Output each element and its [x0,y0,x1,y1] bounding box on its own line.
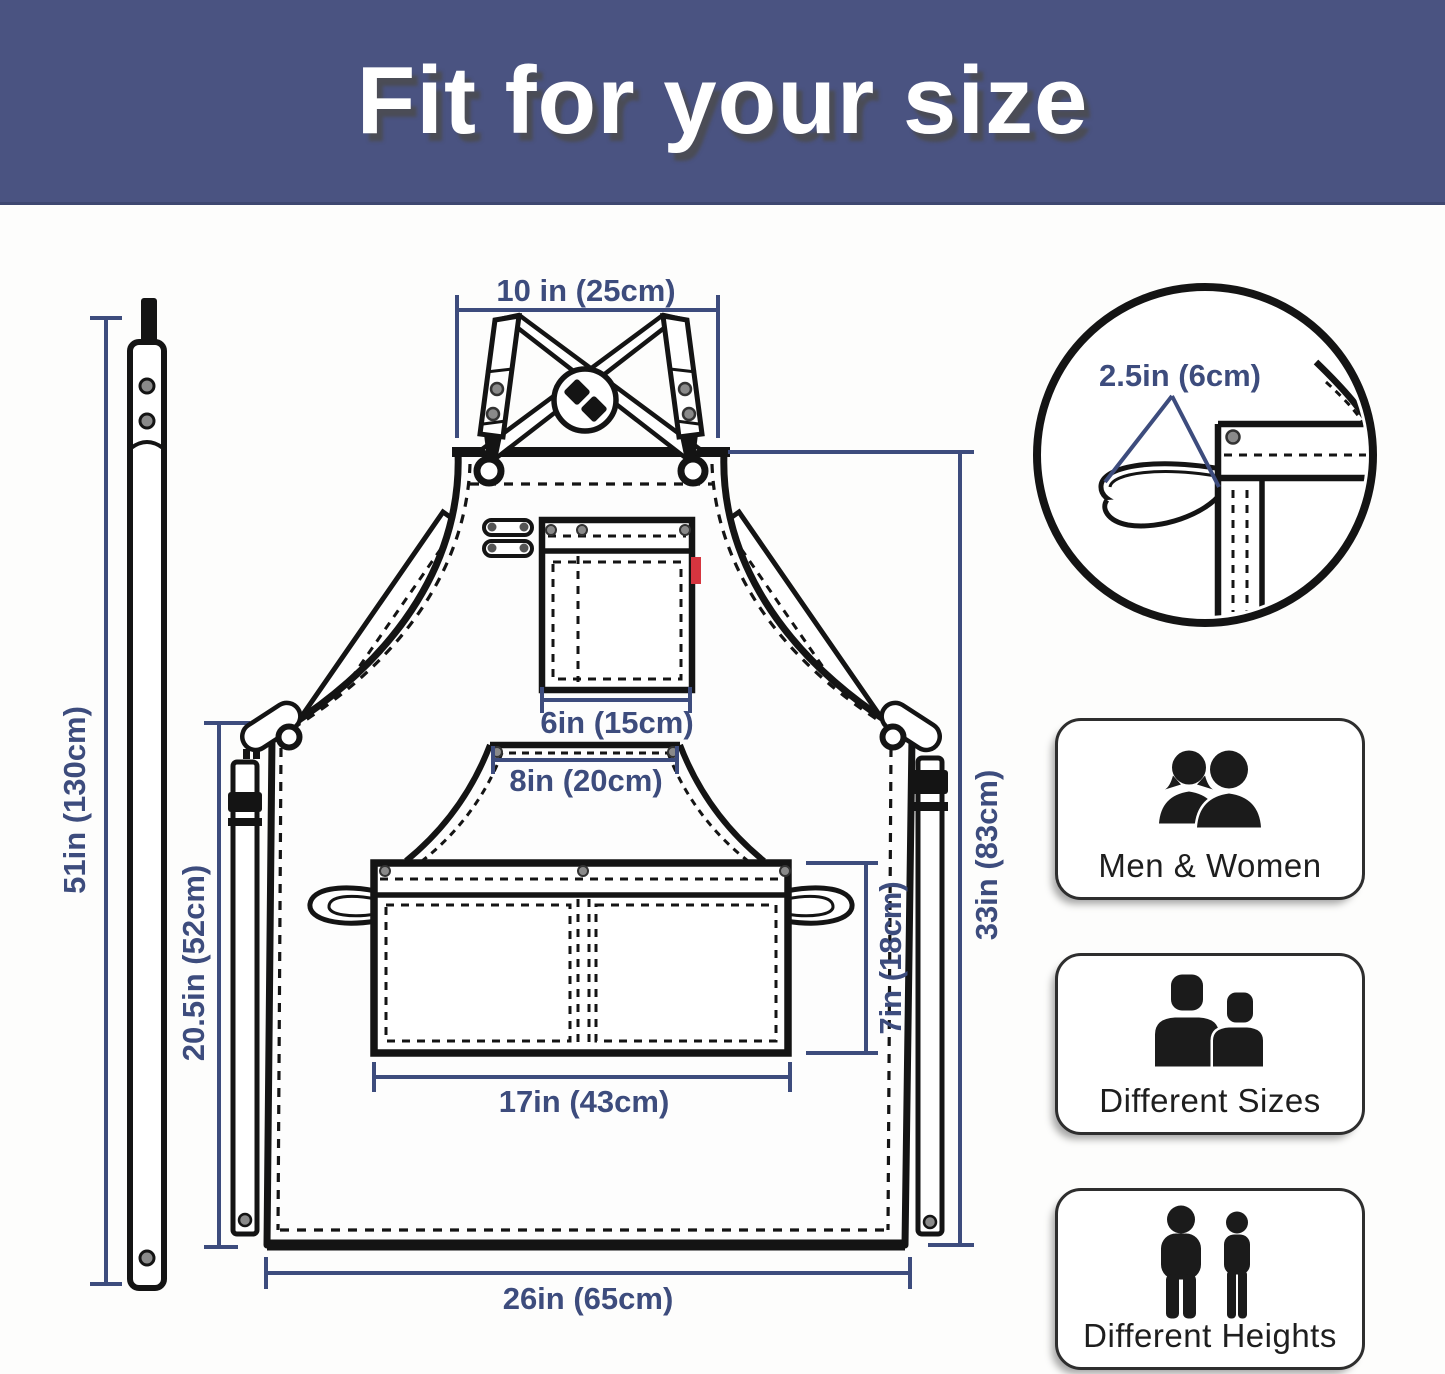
feature-card-different-heights: Different Heights [1055,1188,1365,1370]
dim-neck-width-label: 10 in (25cm) [496,273,675,308]
dim-body-length-label: 33in (83cm) [969,770,1004,941]
strap-buckle [228,792,262,812]
feature-label: Different Heights [1058,1317,1362,1355]
dim-bottom-width: 26in (65cm) [266,1257,910,1316]
long-strap-drawing [130,298,164,1288]
apron-diagram: 51in (130cm) 20.5in (52cm) [0,0,1445,1374]
towel-loop-left [310,888,376,923]
detail-circle: 2.5in (6cm) [1037,287,1383,623]
dim-loop-width-label: 2.5in (6cm) [1099,358,1261,393]
dim-bottom-width-label: 26in (65cm) [503,1281,674,1316]
dim-chest-pocket-label: 6in (15cm) [540,705,693,740]
men-women-icon [1145,731,1275,849]
grommet-icon [883,727,904,748]
dim-panel-top-label: 8in (20cm) [509,763,662,798]
grommet-icon [477,459,501,483]
dim-strap-length-label: 51in (130cm) [57,706,92,894]
strap-buckle [912,770,948,794]
waist-pocket [310,863,852,1053]
feature-card-different-sizes: Different Sizes [1055,953,1365,1135]
different-sizes-icon [1145,966,1275,1084]
towel-loop-right [786,888,852,923]
dim-side-length-label: 20.5in (52cm) [176,865,211,1061]
grommet-icon [681,459,705,483]
feature-label: Men & Women [1058,847,1362,885]
feature-card-men-women: Men & Women [1055,718,1365,900]
infographic: Fit for your size 51in (130cm) 20. [0,0,1445,1374]
dim-strap-length: 51in (130cm) [57,318,122,1284]
dim-pocket-height-label: 7in (18cm) [873,881,908,1034]
grommet-icon [279,727,300,748]
feature-label: Different Sizes [1058,1082,1362,1120]
brand-tag [691,557,701,584]
dim-pocket-width-label: 17in (43cm) [499,1084,670,1119]
different-heights-icon [1145,1201,1275,1323]
